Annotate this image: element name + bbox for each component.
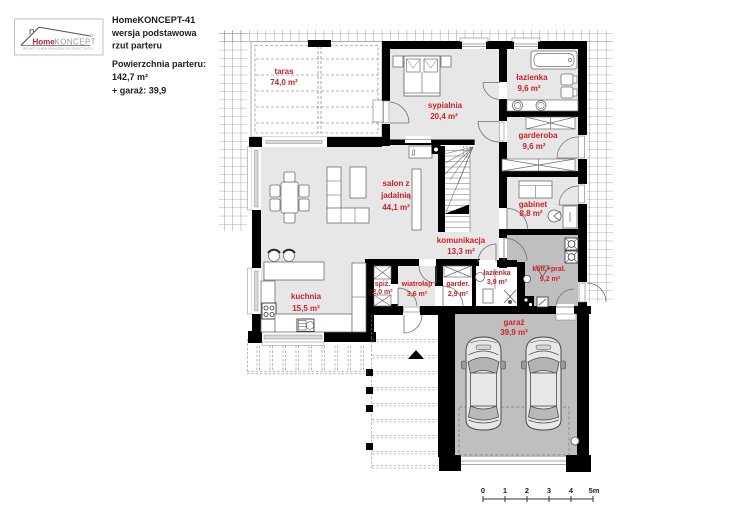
svg-text:9,2 m²: 9,2 m²: [540, 276, 561, 283]
svg-text:HomeKONCEPT-41: HomeKONCEPT-41: [112, 15, 195, 25]
svg-text:2,0 m²: 2,0 m²: [372, 289, 393, 296]
svg-text:15,5 m²: 15,5 m²: [292, 304, 320, 313]
svg-text:taras: taras: [274, 67, 294, 76]
svg-text:3,9 m²: 3,9 m²: [487, 279, 508, 286]
svg-text:Home: Home: [33, 37, 56, 46]
svg-text:2,9 m²: 2,9 m²: [448, 291, 469, 298]
svg-text:8,8 m²: 8,8 m²: [519, 209, 542, 218]
svg-text:wiatrołap: wiatrołap: [401, 281, 433, 288]
svg-text:PROJEKTY DOMOW NOWOCZESNYCH I: PROJEKTY DOMOW NOWOCZESNYCH I TRADYCYJNY…: [23, 47, 93, 50]
svg-text:+ garaż: 39,9: + garaż: 39,9: [112, 86, 166, 96]
svg-text:spiż.: spiż.: [375, 281, 391, 288]
svg-text:salon z: salon z: [382, 179, 409, 188]
svg-text:KONCEPT: KONCEPT: [55, 37, 96, 46]
svg-text:2: 2: [525, 486, 529, 495]
svg-text:jadalnią: jadalnią: [380, 191, 411, 200]
svg-text:0: 0: [481, 486, 485, 495]
svg-text:9,6 m²: 9,6 m²: [522, 142, 545, 151]
svg-text:9,6 m²: 9,6 m²: [517, 84, 540, 93]
svg-text:garderoba: garderoba: [518, 131, 558, 140]
svg-text:wersja podstawowa: wersja podstawowa: [111, 28, 198, 38]
svg-text:1: 1: [503, 486, 507, 495]
svg-text:20,4 m²: 20,4 m²: [430, 112, 458, 121]
svg-text:łazienka: łazienka: [483, 270, 510, 277]
svg-text:74,0 m²: 74,0 m²: [270, 78, 298, 87]
svg-text:rzut parteru: rzut parteru: [112, 41, 162, 51]
svg-text:gabinet: gabinet: [519, 200, 548, 209]
svg-text:13,3 m²: 13,3 m²: [447, 247, 475, 256]
svg-text:142,7 m²: 142,7 m²: [112, 72, 148, 82]
svg-text:Powierzchnia parteru:: Powierzchnia parteru:: [112, 59, 206, 69]
svg-text:garaż: garaż: [504, 318, 525, 327]
svg-text:∫∫: ∫∫: [411, 149, 416, 156]
svg-text:5m: 5m: [589, 486, 600, 495]
svg-text:łazienka: łazienka: [516, 73, 548, 82]
svg-text:kuchnia: kuchnia: [291, 292, 322, 301]
svg-text:39,9 m²: 39,9 m²: [500, 328, 528, 337]
svg-text:garder.: garder.: [446, 281, 469, 288]
svg-text:kotł.+pral.: kotł.+pral.: [532, 266, 565, 273]
svg-text:3,6 m²: 3,6 m²: [407, 291, 428, 298]
svg-text:komunikacja: komunikacja: [437, 236, 486, 245]
svg-text:sypialnia: sypialnia: [428, 101, 463, 110]
svg-text:44,1 m²: 44,1 m²: [382, 203, 410, 212]
svg-text:3: 3: [547, 486, 551, 495]
